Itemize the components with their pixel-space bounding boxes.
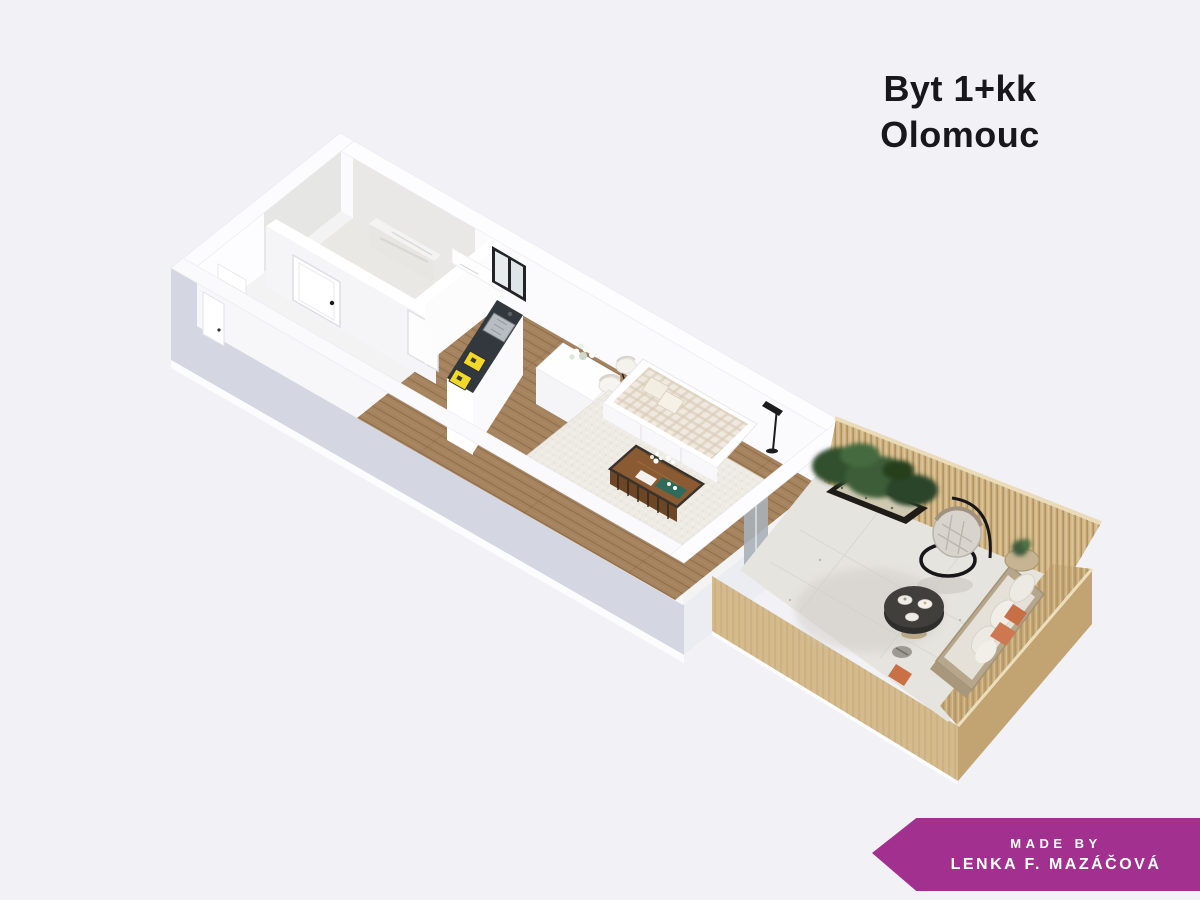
page-title: Byt 1+kk Olomouc	[840, 66, 1080, 158]
title-line-2: Olomouc	[840, 112, 1080, 158]
credit-banner: MADE BY LENKA F. MAZÁČOVÁ	[872, 818, 1200, 891]
floor-plan-render: Byt 1+kk Olomouc MADE BY LENKA F. MAZÁČO…	[0, 0, 1200, 900]
title-line-1: Byt 1+kk	[840, 66, 1080, 112]
apartment-block	[171, 133, 853, 663]
door-handle	[330, 301, 334, 305]
recess-door-handle	[217, 328, 220, 331]
credit-line-2: LENKA F. MAZÁČOVÁ	[951, 856, 1162, 874]
credit-line-1: MADE BY	[1010, 836, 1101, 851]
